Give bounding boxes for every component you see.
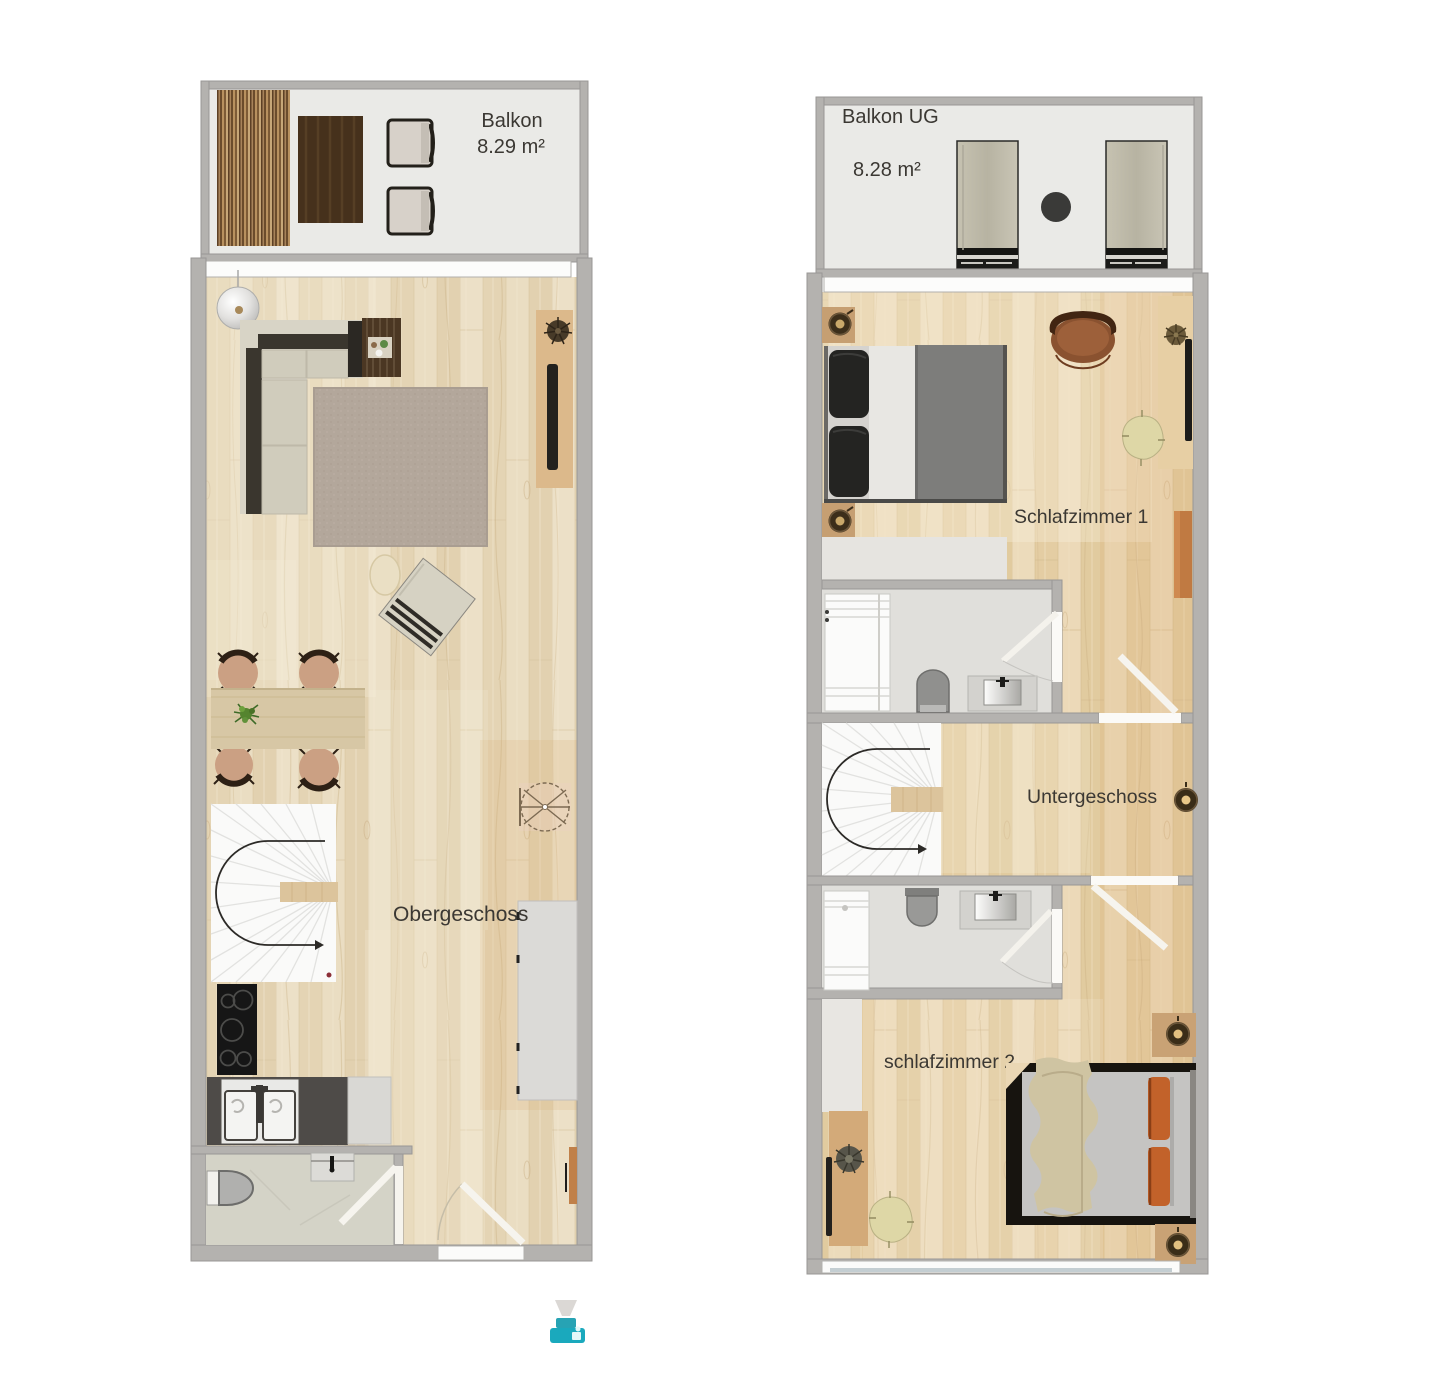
svg-text:Obergeschoss: Obergeschoss <box>393 903 528 926</box>
svg-text:Untergeschoss: Untergeschoss <box>1027 786 1157 808</box>
svg-text:Balkon: Balkon <box>481 110 542 132</box>
svg-text:8.29 m²: 8.29 m² <box>477 136 545 158</box>
svg-text:8.28 m²: 8.28 m² <box>853 159 921 181</box>
svg-text:Balkon UG: Balkon UG <box>842 106 939 128</box>
svg-text:Schlafzimmer 1: Schlafzimmer 1 <box>1014 506 1148 528</box>
svg-text:schlafzimmer 2: schlafzimmer 2 <box>884 1051 1015 1073</box>
